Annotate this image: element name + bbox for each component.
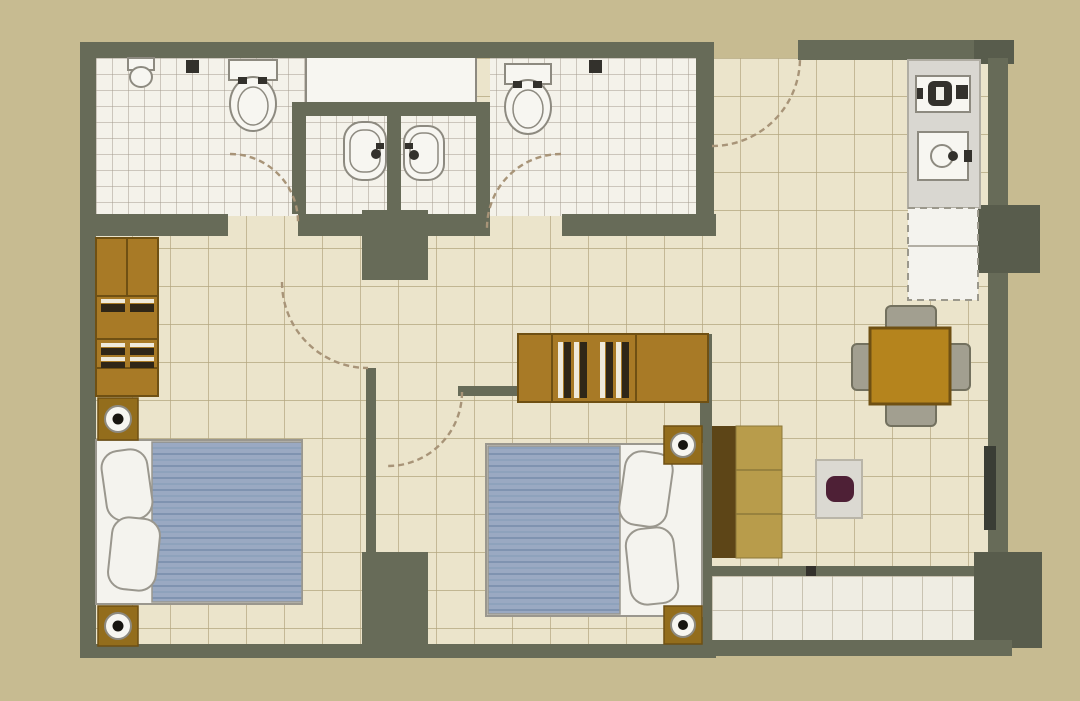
- pedestal-sink-right-icon: [404, 126, 444, 180]
- sofa-back: [712, 426, 736, 558]
- wall-balcony-divider: [700, 566, 990, 576]
- floor-plan-canvas: [0, 0, 1080, 701]
- sink-right-tap: [405, 143, 413, 149]
- wall-alcove-bottom: [428, 214, 490, 236]
- wall-fitting-icon: [589, 60, 602, 73]
- bedroom-2: [486, 334, 708, 644]
- window-icon: [984, 446, 996, 530]
- wall-balcony-bottom: [700, 640, 1012, 656]
- wall-bathroom2-right: [696, 42, 714, 236]
- bed-blanket: [152, 442, 302, 602]
- cooktop-icon: [916, 76, 970, 112]
- wall-bathroom1-bottom-left: [92, 214, 228, 236]
- wall-divider-nub: [806, 566, 816, 576]
- pillow-bottom: [106, 516, 161, 593]
- sink-left-faucet: [371, 149, 381, 159]
- coffee-table-icon: [816, 460, 862, 518]
- wall-bottom: [80, 644, 716, 658]
- nightstand-top-icon: [98, 398, 138, 440]
- coffee-table-decor: [826, 476, 854, 502]
- column-kitchen: [978, 205, 1040, 273]
- wall-sink-divider: [387, 116, 401, 216]
- toilet-bowl: [230, 77, 276, 131]
- cooktop-burner-center: [936, 87, 944, 100]
- sofa-seat: [736, 426, 782, 558]
- wall-bedroom2-top: [458, 386, 520, 396]
- cooktop-knob-block: [956, 85, 968, 99]
- double-bed-icon: [486, 444, 702, 616]
- dining-table: [870, 328, 950, 404]
- wardrobe-icon: [518, 334, 708, 402]
- toilet-icon: [505, 64, 551, 134]
- column-balcony: [974, 552, 1042, 648]
- toilet-hinge-left: [238, 77, 247, 84]
- toilet-icon: [229, 60, 277, 131]
- toilet-hinge-left: [513, 81, 522, 88]
- nightstand-top-icon: [664, 426, 702, 464]
- pedestal-sink-left-icon: [344, 122, 386, 180]
- sofa-icon: [712, 426, 782, 558]
- wall-under-shaft: [304, 102, 484, 116]
- kitchen-sink-icon: [918, 132, 972, 180]
- pillow-top: [99, 447, 154, 523]
- double-bed-icon: [96, 440, 302, 604]
- sink-left-tap: [376, 143, 384, 149]
- pillow-bottom: [624, 526, 680, 607]
- lamp-center: [678, 440, 688, 450]
- wall-fitting-icon: [186, 60, 199, 73]
- toilet-bowl: [505, 80, 551, 134]
- refrigerator-space: [908, 208, 978, 300]
- wall-top-left: [80, 42, 698, 58]
- kitchen: [908, 60, 980, 300]
- lamp-center: [113, 414, 124, 425]
- balcony-floor: [712, 576, 974, 642]
- bed-blanket: [488, 446, 620, 614]
- wall-bathroom2-bottom: [562, 214, 716, 236]
- nightstand-bottom-icon: [98, 606, 138, 646]
- floor-plan: [0, 0, 1080, 701]
- lamp-center: [113, 621, 124, 632]
- toilet-hinge-right: [533, 81, 542, 88]
- kitchen-sink-faucet: [948, 151, 958, 161]
- wall-bedroom1-right: [366, 368, 376, 556]
- kitchen-sink-tap: [964, 150, 972, 162]
- wardrobe-icon: [96, 238, 158, 396]
- bathroom-1-floor: [96, 58, 306, 216]
- lamp-center: [678, 620, 688, 630]
- wall-bathroom1-bottom-right: [298, 214, 364, 236]
- wall-left: [80, 42, 96, 658]
- toilet-hinge-right: [258, 77, 267, 84]
- column-central: [362, 210, 428, 280]
- wall-bathroom2-left: [476, 102, 490, 214]
- cooktop-handle: [917, 88, 923, 99]
- column-bedroom-partition: [362, 552, 428, 646]
- sink-right-faucet: [409, 150, 419, 160]
- mini-basin-icon: [130, 67, 152, 87]
- nightstand-bottom-icon: [664, 606, 702, 644]
